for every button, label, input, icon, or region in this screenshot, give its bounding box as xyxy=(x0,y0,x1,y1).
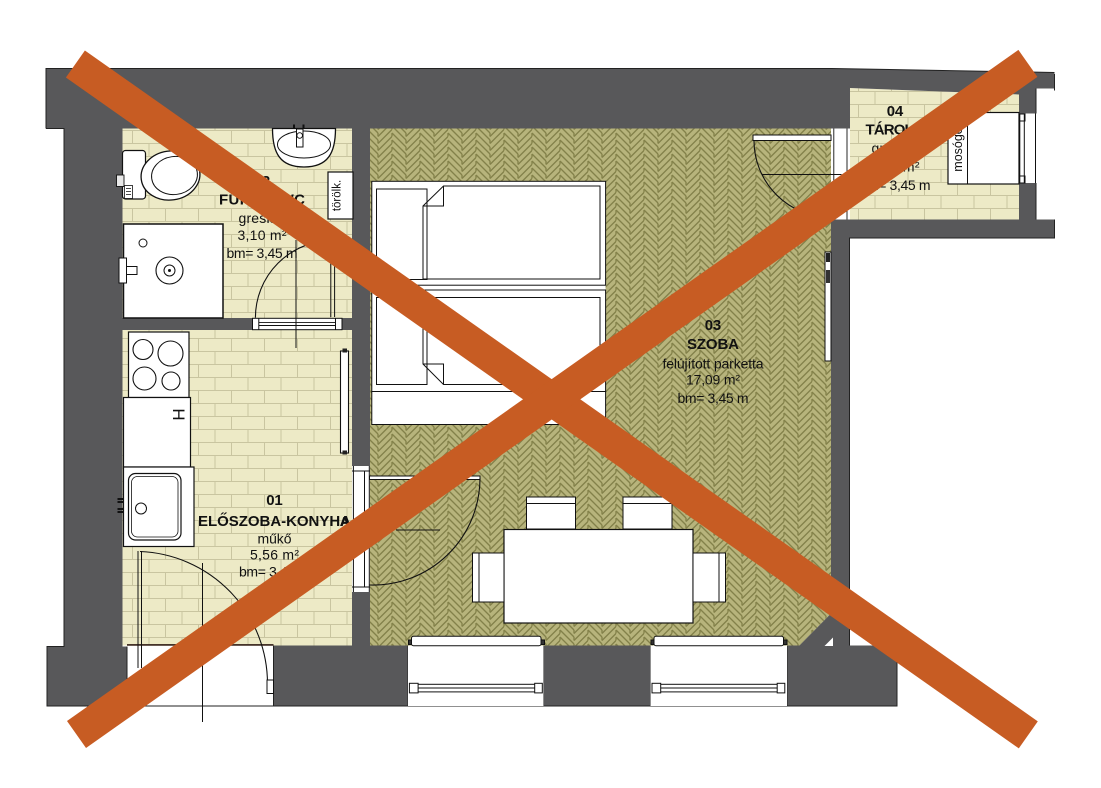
svg-text:ELŐSZOBA-KONYHA: ELŐSZOBA-KONYHA xyxy=(198,512,351,530)
svg-text:H: H xyxy=(169,408,188,420)
svg-text:01: 01 xyxy=(266,492,283,509)
svg-text:bm= 3,45 m: bm= 3,45 m xyxy=(678,390,749,406)
svg-text:3,10 m²: 3,10 m² xyxy=(238,227,287,243)
svg-text:műkő: műkő xyxy=(258,531,292,547)
svg-text:04: 04 xyxy=(887,103,904,120)
svg-text:03: 03 xyxy=(705,317,722,334)
svg-text:bm= 3,45 m: bm= 3,45 m xyxy=(227,245,298,261)
svg-text:17,09 m²: 17,09 m² xyxy=(686,372,740,388)
svg-text:törölk.: törölk. xyxy=(332,180,344,211)
svg-text:SZOBA: SZOBA xyxy=(687,336,739,353)
svg-text:felújított parketta: felújított parketta xyxy=(663,356,764,372)
svg-text:5,56 m²: 5,56 m² xyxy=(250,547,299,563)
